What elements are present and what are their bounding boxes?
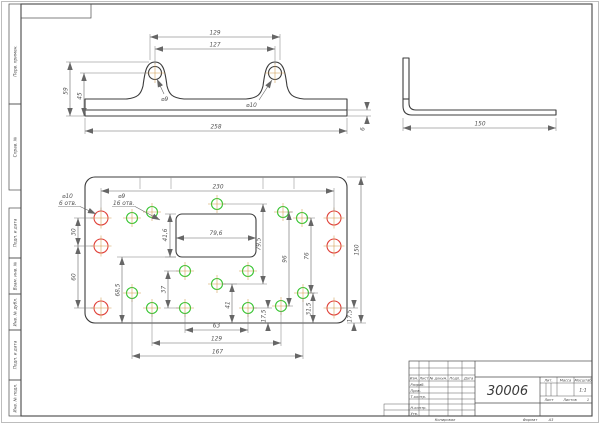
side-view-outline	[403, 58, 556, 115]
tb-list: Лист	[543, 398, 554, 402]
drawing-sheet: Перв. примен. Справ. № Подп. и дата Взам…	[0, 0, 600, 424]
svg-text:⌀9: ⌀9	[118, 194, 125, 200]
dim-front-258: 258	[85, 118, 347, 134]
tb-col-dokum: № докум.	[429, 377, 448, 381]
dim-plan-76: 76	[305, 218, 316, 293]
svg-text:79,5: 79,5	[257, 237, 263, 250]
dim-plan-37: 37	[162, 271, 181, 308]
svg-text:167: 167	[212, 350, 223, 356]
svg-text:129: 129	[211, 337, 222, 343]
svg-text:16 отв.: 16 отв.	[113, 201, 135, 207]
dim-plan-17-5a: 17,5	[253, 300, 272, 331]
svg-text:⌀10: ⌀10	[246, 103, 257, 109]
dim-plan-79-5: 79,5	[223, 204, 267, 284]
tb-row-tkontr: Т.контр.	[411, 395, 427, 399]
svg-text:41,6: 41,6	[163, 228, 169, 241]
svg-text:76: 76	[305, 252, 311, 260]
margin-boxes: Перв. примен. Справ. № Подп. и дата Взам…	[9, 4, 21, 416]
dim-front-6: 6	[347, 102, 371, 131]
svg-text:6: 6	[361, 127, 367, 131]
tb-col-izm: Изм.	[410, 377, 418, 381]
svg-text:⌀10: ⌀10	[62, 194, 73, 200]
svg-text:79,6: 79,6	[210, 231, 223, 237]
margin-label-sprav: Справ. №	[13, 136, 18, 157]
tb-masshtab: Масштаб	[574, 378, 592, 382]
svg-text:63: 63	[213, 324, 221, 330]
margin-label-podp1: Подп. и дата	[13, 218, 18, 247]
tb-massa: Масса	[560, 378, 571, 382]
bottom-strip: Копировал Формат A3	[435, 418, 554, 422]
margin-label-perv: Перв. примен.	[13, 45, 18, 76]
side-view: 150	[403, 58, 556, 131]
dim-plan-150: 150	[347, 177, 366, 323]
tb-row-razrab: Разраб.	[411, 383, 425, 387]
tb-lit: Лит.	[543, 378, 552, 382]
format-label: Формат	[523, 418, 538, 422]
dim-plan-60: 60	[72, 246, 94, 308]
margin-label-vzam: Взам. инв. №	[13, 261, 18, 290]
dim-plan-41-6: 41,6	[163, 214, 176, 257]
svg-text:31,5: 31,5	[307, 302, 313, 315]
front-view-outline	[85, 62, 347, 116]
svg-text:60: 60	[72, 273, 78, 281]
dim-plan-17-5b: 17,5	[340, 300, 358, 331]
tb-listov-value: 1	[587, 398, 589, 402]
format-value: A3	[548, 418, 554, 422]
drawing-canvas: Перв. примен. Справ. № Подп. и дата Взам…	[0, 0, 600, 424]
copied-label: Копировал	[435, 418, 456, 422]
dim-front-59: 59	[64, 62, 150, 116]
svg-text:⌀9: ⌀9	[161, 97, 168, 103]
svg-text:129: 129	[209, 31, 220, 37]
plan-view: 230 ⌀10 6 отв. ⌀9 16 отв. 30 60 68,5	[58, 177, 366, 359]
top-left-box	[21, 4, 91, 18]
title-block: Изм. Лист № докум. Подп. Дата Разраб. Пр…	[384, 361, 592, 416]
svg-text:6 отв.: 6 отв.	[59, 201, 77, 207]
dim-side-150: 150	[403, 118, 556, 131]
dim-plan-79-6: 79,6	[176, 231, 256, 238]
tb-row-prov: Пров.	[411, 389, 421, 393]
svg-text:37: 37	[162, 286, 168, 294]
tb-scale-value: 1:1	[579, 388, 586, 394]
svg-text:41: 41	[226, 301, 232, 308]
margin-label-podl: Инв. № подл.	[13, 384, 18, 413]
dim-plan-41: 41	[222, 284, 237, 323]
dim-plan-96: 96	[283, 212, 294, 306]
tb-col-podp: Подп.	[450, 377, 461, 381]
tb-col-data: Дата	[463, 377, 473, 381]
svg-text:96: 96	[283, 255, 289, 263]
svg-text:258: 258	[210, 125, 221, 131]
svg-text:30: 30	[72, 228, 78, 236]
svg-text:17,5: 17,5	[262, 309, 268, 322]
margin-label-dubl: Инв. № дубл.	[13, 298, 18, 327]
svg-text:127: 127	[209, 43, 220, 49]
svg-text:17,5: 17,5	[348, 309, 354, 322]
dim-plan-31-5: 31,5	[307, 293, 319, 323]
svg-text:230: 230	[212, 185, 223, 191]
margin-label-podp2: Подп. и дата	[13, 340, 18, 369]
tb-listov: Листов	[562, 398, 576, 402]
svg-text:150: 150	[474, 122, 485, 128]
svg-text:68,5: 68,5	[116, 283, 122, 296]
dim-plan-30: 30	[72, 218, 94, 246]
svg-text:150: 150	[355, 244, 361, 255]
front-view: 129 127 59 45 ⌀9 ⌀10 258	[64, 31, 372, 135]
tb-col-list: Лист	[418, 377, 429, 381]
svg-text:45: 45	[78, 92, 84, 100]
callout-plan-d10: ⌀10 6 отв.	[58, 194, 96, 214]
svg-text:59: 59	[64, 87, 70, 95]
tb-doc-number: 30006	[487, 384, 528, 399]
tb-row-nkontr: Н.контр.	[411, 406, 427, 410]
dim-front-127: 127	[155, 43, 275, 65]
tb-row-utv: Утв.	[411, 412, 419, 416]
